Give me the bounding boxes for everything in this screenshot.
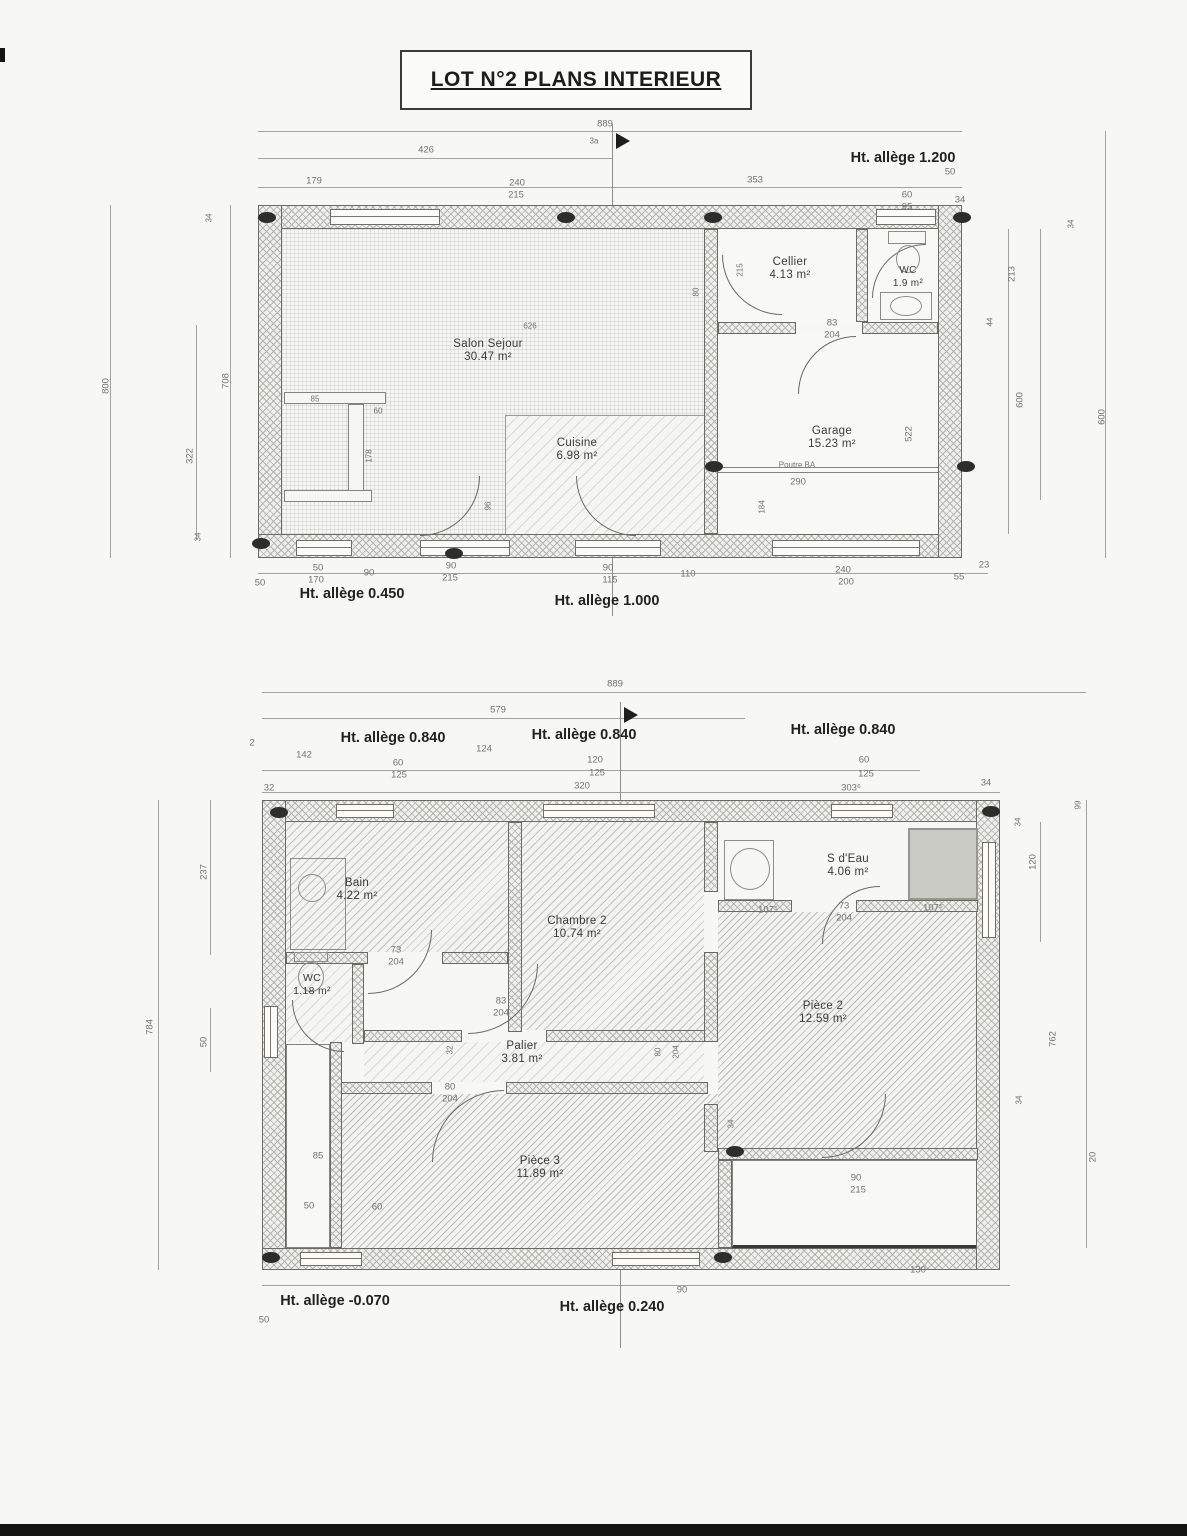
dim-line <box>258 158 612 159</box>
page-title: LOT N°2 PLANS INTERIEUR <box>431 68 722 92</box>
height-annotation: Ht. allège 0.840 <box>341 730 446 746</box>
dimension-label: 32 <box>264 783 275 794</box>
scan-mark <box>0 48 5 62</box>
room-name: Garage <box>808 425 856 438</box>
dimension-label: 320 <box>574 781 590 792</box>
dimension-label: 2 <box>249 738 254 749</box>
dimension-label: 44 <box>986 318 995 327</box>
dimension-label: 303⁶ <box>841 783 861 794</box>
room-area: 1.9 m² <box>893 277 923 290</box>
dimension-label: 200 <box>838 577 854 588</box>
room-label-piece2: Pièce 2 12.59 m² <box>799 1000 847 1026</box>
dimension-label: 215 <box>442 573 458 584</box>
room-label-piece3: Pièce 3 11.89 m² <box>517 1155 564 1181</box>
wall <box>856 229 868 322</box>
dimension-label: 90 <box>446 561 457 572</box>
dim-line <box>210 800 211 955</box>
dimension-label: 90 <box>364 568 375 579</box>
dimension-label: 125 <box>391 770 407 781</box>
dimension-label: 353 <box>747 175 763 186</box>
dimension-label: 80 <box>445 1082 456 1093</box>
dimension-label: 80 <box>654 1048 663 1057</box>
room-area: 11.89 m² <box>517 1168 564 1181</box>
wall <box>330 1042 342 1248</box>
dimension-label: 60 <box>372 1202 383 1213</box>
dimension-label: 107⁵ <box>758 905 778 916</box>
dimension-label: 889 <box>597 119 613 130</box>
room-name: Pièce 2 <box>799 1000 847 1013</box>
dimension-label: 23 <box>979 560 990 571</box>
dimension-label: 3a <box>590 137 599 146</box>
dimension-label: 322 <box>185 448 196 464</box>
dimension-label: 115 <box>602 575 617 586</box>
dimension-label: 184 <box>758 500 767 513</box>
column-marker <box>714 1252 732 1263</box>
wall <box>718 322 796 334</box>
dimension-label: 60 <box>374 407 383 416</box>
dimension-label: 60 <box>902 190 913 201</box>
dimension-label: 83 <box>827 318 838 329</box>
column-marker <box>262 1252 280 1263</box>
dimension-label: 800 <box>101 378 112 394</box>
dimension-label: 142 <box>296 750 312 761</box>
room-label-chambre2: Chambre 2 10.74 m² <box>547 915 607 941</box>
dimension-label: 90 <box>851 1173 862 1184</box>
room-name: Bain <box>336 877 377 890</box>
dimension-label: 95 <box>902 202 913 213</box>
kitchen-counter <box>284 490 372 502</box>
wall <box>442 952 508 964</box>
dimension-label: 125 <box>589 768 605 779</box>
dimension-label: 85 <box>313 1151 324 1162</box>
dimension-label: 34 <box>981 778 992 789</box>
dimension-label: 50 <box>255 578 266 589</box>
room-name: Salon Sejour <box>453 338 522 351</box>
dim-line <box>262 792 1000 793</box>
column-marker <box>982 806 1000 817</box>
room-area: 12.59 m² <box>799 1013 847 1026</box>
column-marker <box>726 1146 744 1157</box>
window <box>300 1252 362 1266</box>
room-label-cellier: Cellier 4.13 m² <box>769 256 810 282</box>
dimension-label: 426 <box>418 145 434 156</box>
scan-edge <box>0 1524 1187 1536</box>
scanned-floor-plan-page: LOT N°2 PLANS INTERIEUR <box>0 0 1187 1536</box>
height-annotation: Ht. allège 1.000 <box>555 593 660 609</box>
dimension-label: 215 <box>508 190 524 201</box>
room-label-garage: Garage 15.23 m² <box>808 425 856 451</box>
dimension-label: 34 <box>205 214 214 223</box>
title-box: LOT N°2 PLANS INTERIEUR <box>400 50 752 110</box>
height-annotation: Ht. allège -0.070 <box>280 1293 390 1309</box>
room-label-wc: WC 1.9 m² <box>893 264 923 290</box>
dim-line <box>262 1285 1010 1286</box>
dimension-label: 50 <box>304 1201 315 1212</box>
dimension-label: 204 <box>493 1008 509 1019</box>
room-area: 4.22 m² <box>336 890 377 903</box>
kitchen-counter <box>284 392 386 404</box>
garage-door <box>772 540 920 556</box>
dim-line <box>1105 131 1106 558</box>
column-marker <box>953 212 971 223</box>
room-label-bain: Bain 4.22 m² <box>336 877 377 903</box>
dim-line <box>196 325 197 540</box>
room-name: Cuisine <box>556 437 597 450</box>
dimension-label: 32 <box>446 1046 455 1055</box>
wall <box>718 1160 732 1248</box>
column-marker <box>705 461 723 472</box>
dimension-label: 240 <box>835 565 851 576</box>
section-marker-icon <box>624 707 638 723</box>
height-annotation: Ht. allège 0.240 <box>560 1299 665 1315</box>
column-marker <box>258 212 276 223</box>
dimension-label: 204 <box>442 1094 458 1105</box>
dimension-label: 120 <box>1028 854 1039 870</box>
dimension-label: 34 <box>1015 1096 1024 1105</box>
room-area: 15.23 m² <box>808 438 856 451</box>
column-marker <box>957 461 975 472</box>
dimension-label: 204 <box>824 330 840 341</box>
dimension-label: 99 <box>1074 801 1083 810</box>
room-area: 4.13 m² <box>769 269 810 282</box>
dim-line <box>1040 229 1041 500</box>
room-name: Palier <box>501 1040 542 1053</box>
dimension-label: 600 <box>1015 392 1026 408</box>
room-label-cuisine: Cuisine 6.98 m² <box>556 437 597 463</box>
room-name: WC <box>293 972 331 985</box>
dimension-label: 889 <box>607 679 623 690</box>
dimension-label: 50 <box>313 563 324 574</box>
room-label-salon: Salon Sejour 30.47 m² <box>453 338 522 364</box>
dimension-label: 107⁵ <box>923 903 943 914</box>
bathtub-icon <box>290 858 346 950</box>
dimension-label: 83 <box>496 996 507 1007</box>
height-annotation: Ht. allège 1.200 <box>851 150 956 166</box>
dimension-label: 522 <box>904 426 915 442</box>
wall <box>546 1030 708 1042</box>
dimension-label: 120 <box>587 755 603 766</box>
dimension-label: 600 <box>1097 409 1108 425</box>
dimension-label: 90 <box>603 563 614 574</box>
wall <box>862 322 938 334</box>
dimension-label: 34 <box>1067 220 1076 229</box>
beam-poutre-ba <box>718 467 938 473</box>
room-area: 6.98 m² <box>556 450 597 463</box>
room-area: 30.47 m² <box>453 351 522 364</box>
room-label-wc2: WC 1.18 m² <box>293 972 331 998</box>
window <box>330 209 440 225</box>
wall <box>704 229 718 534</box>
dimension-label: 130 <box>910 1265 926 1276</box>
room-name: S d'Eau <box>827 853 869 866</box>
dimension-label: 60 <box>393 758 404 769</box>
dimension-label: Poutre BA <box>779 461 815 470</box>
dimension-label: 124 <box>476 744 492 755</box>
dimension-label: 178 <box>365 449 374 462</box>
wall <box>938 205 962 558</box>
window <box>612 1252 700 1266</box>
room-area: 3.81 m² <box>501 1053 542 1066</box>
column-marker <box>270 807 288 818</box>
room-name: Pièce 3 <box>517 1155 564 1168</box>
dimension-label: 20 <box>1088 1152 1099 1163</box>
dimension-label: 80 <box>692 288 701 297</box>
bathtub-drain-icon <box>298 874 326 902</box>
dimension-label: 240 <box>509 178 525 189</box>
wall <box>330 1082 432 1094</box>
dimension-label: 34 <box>727 1120 736 1129</box>
section-marker-icon <box>616 133 630 149</box>
room-label-sdeau: S d'Eau 4.06 m² <box>827 853 869 879</box>
dimension-label: 34 <box>1014 818 1023 827</box>
door-threshold <box>575 540 661 556</box>
wall <box>364 1030 462 1042</box>
dimension-label: 73 <box>839 901 850 912</box>
dim-line <box>258 131 962 132</box>
wall <box>718 900 792 912</box>
room-name: WC <box>893 264 923 277</box>
wall <box>704 952 718 1042</box>
dimension-label: 90 <box>677 1285 688 1296</box>
dim-line <box>262 718 745 719</box>
window <box>264 1006 278 1058</box>
dimension-label: 579 <box>490 705 506 716</box>
dimension-label: 204 <box>836 913 852 924</box>
closet-fill <box>286 1044 330 1248</box>
window <box>336 804 394 818</box>
washbasin-icon <box>730 848 770 890</box>
height-annotation: Ht. allège 0.840 <box>532 727 637 743</box>
toilet-tank-icon <box>294 952 328 962</box>
dimension-label: 762 <box>1048 1031 1059 1047</box>
room-area: 10.74 m² <box>547 928 607 941</box>
dimension-label: 96 <box>484 502 493 511</box>
room-area: 1.18 m² <box>293 985 331 998</box>
wall <box>352 964 364 1044</box>
column-marker <box>704 212 722 223</box>
dimension-label: 34 <box>194 533 203 542</box>
wall <box>704 822 718 892</box>
room-name: Chambre 2 <box>547 915 607 928</box>
height-annotation: Ht. allège 0.840 <box>791 722 896 738</box>
wall <box>704 1104 718 1152</box>
dim-line <box>1086 800 1087 1248</box>
dimension-label: 125 <box>858 769 874 780</box>
shower-icon <box>908 828 978 900</box>
dimension-label: 85 <box>311 395 320 404</box>
dim-line <box>262 692 1086 693</box>
dimension-label: 73 <box>391 945 402 956</box>
wall <box>506 1082 708 1094</box>
dimension-label: 179 <box>306 176 322 187</box>
dimension-label: 204 <box>672 1045 681 1058</box>
dim-line <box>1040 822 1041 942</box>
dimension-label: 170 <box>308 575 324 586</box>
window <box>420 540 510 556</box>
dimension-label: 213 <box>1007 266 1018 282</box>
wall <box>258 205 282 558</box>
toilet-tank-icon <box>888 231 926 244</box>
window <box>831 804 893 818</box>
dimension-label: 204 <box>388 957 404 968</box>
window <box>543 804 655 818</box>
dimension-label: 215 <box>736 263 745 276</box>
dimension-label: 55 <box>954 572 965 583</box>
window <box>296 540 352 556</box>
dimension-label: 34 <box>955 195 966 206</box>
dim-line <box>210 1008 211 1072</box>
dimension-label: 50 <box>199 1037 210 1048</box>
kitchen-counter <box>348 404 364 496</box>
dimension-label: 784 <box>145 1019 156 1035</box>
column-marker <box>252 538 270 549</box>
dimension-label: 110 <box>680 569 695 580</box>
height-annotation: Ht. allège 0.450 <box>300 586 405 602</box>
dimension-label: 237 <box>199 864 210 880</box>
room-area: 4.06 m² <box>827 866 869 879</box>
room-label-palier: Palier 3.81 m² <box>501 1040 542 1066</box>
dimension-label: 60 <box>859 755 870 766</box>
dim-line <box>158 800 159 1270</box>
dim-line <box>258 187 962 188</box>
column-marker <box>557 212 575 223</box>
dimension-label: 50 <box>259 1315 270 1326</box>
sink-basin-icon <box>890 296 922 316</box>
dimension-label: 708 <box>221 373 232 389</box>
window <box>982 842 996 938</box>
column-marker <box>445 548 463 559</box>
room-name: Cellier <box>769 256 810 269</box>
dimension-label: 290 <box>790 477 806 488</box>
dimension-label: 215 <box>850 1185 866 1196</box>
dimension-label: 626 <box>523 322 536 331</box>
dimension-label: 50 <box>945 167 956 178</box>
